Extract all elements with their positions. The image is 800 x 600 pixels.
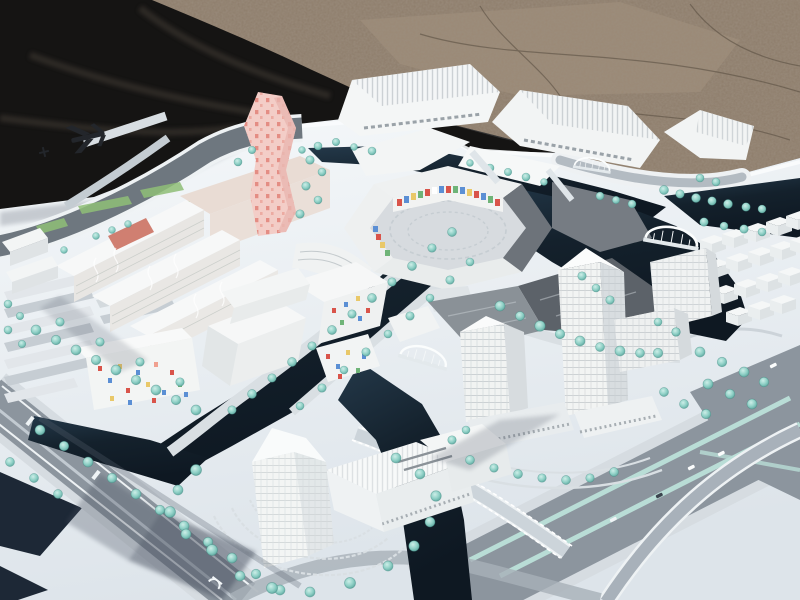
photo-of-architectural-model [0,0,800,600]
tower-mid [460,316,528,422]
scene [0,0,800,600]
